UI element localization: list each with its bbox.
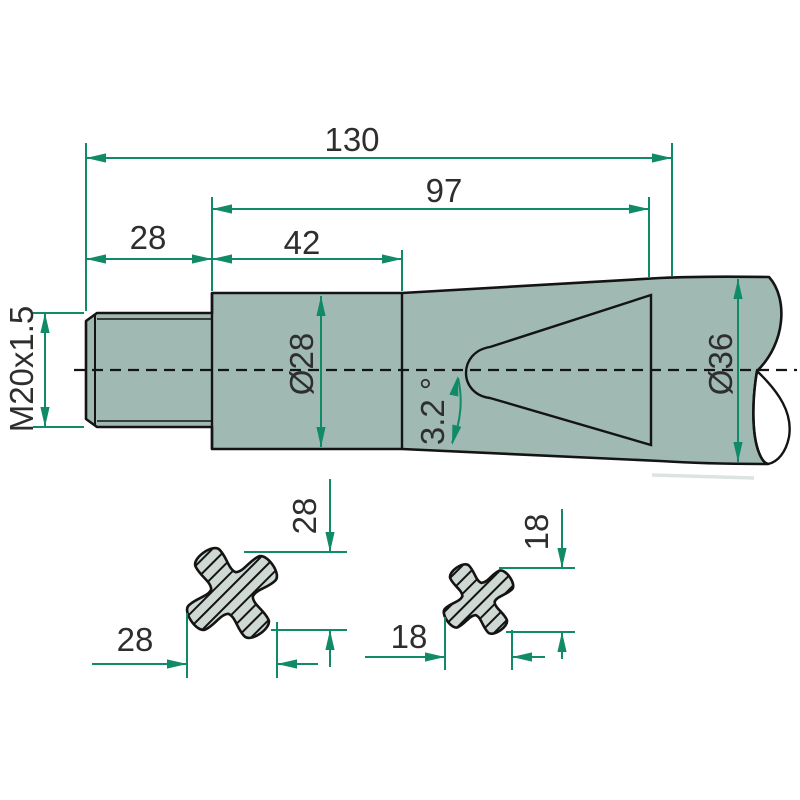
arrow-small-w-right [512,652,532,661]
arrow-m20-down [40,407,49,427]
label-socket-depth: 97 [426,172,463,209]
arrow-large-h-bottom [325,630,334,650]
arrow-small-w-left [425,652,445,661]
arrow-42-left [212,254,232,263]
arrow-97-left [212,204,232,213]
arrow-m20-up [40,313,49,333]
technical-drawing-canvas: 130 97 28 42 M20x1.5 Ø28 Ø36 3.2 ° 28 28… [0,0,800,800]
arrow-large-h-top [325,532,334,552]
label-thread-spec: M20x1.5 [3,306,40,433]
label-collar-length: 42 [284,224,321,261]
break-hatch-sliver [753,371,789,464]
label-small-section-width: 18 [391,618,428,655]
cross-section-small-shape [441,562,515,636]
arrow-small-h-top [557,548,566,568]
arrow-97-right [629,204,649,213]
arrow-small-h-bottom [557,632,566,652]
arrow-28-left [86,254,106,263]
label-total-length: 130 [324,121,379,158]
cross-section-large-shape [184,545,280,641]
arrow-large-w-right [277,659,297,668]
shadow-line [652,475,754,478]
label-shaft-diameter: Ø28 [283,333,320,395]
technical-drawing-page: 130 97 28 42 M20x1.5 Ø28 Ø36 3.2 ° 28 28… [0,0,800,800]
label-large-section-height: 28 [286,498,323,535]
arrow-130-left [86,153,106,162]
label-taper-angle: 3.2 ° [414,377,451,445]
arrow-28-right [192,254,212,263]
arrow-130-right [652,153,672,162]
label-large-section-width: 28 [117,621,154,658]
label-small-section-height: 18 [518,514,555,551]
label-thread-length: 28 [130,219,167,256]
label-end-diameter: Ø36 [702,333,739,395]
arrow-42-right [382,254,402,263]
arrow-large-w-left [167,659,187,668]
